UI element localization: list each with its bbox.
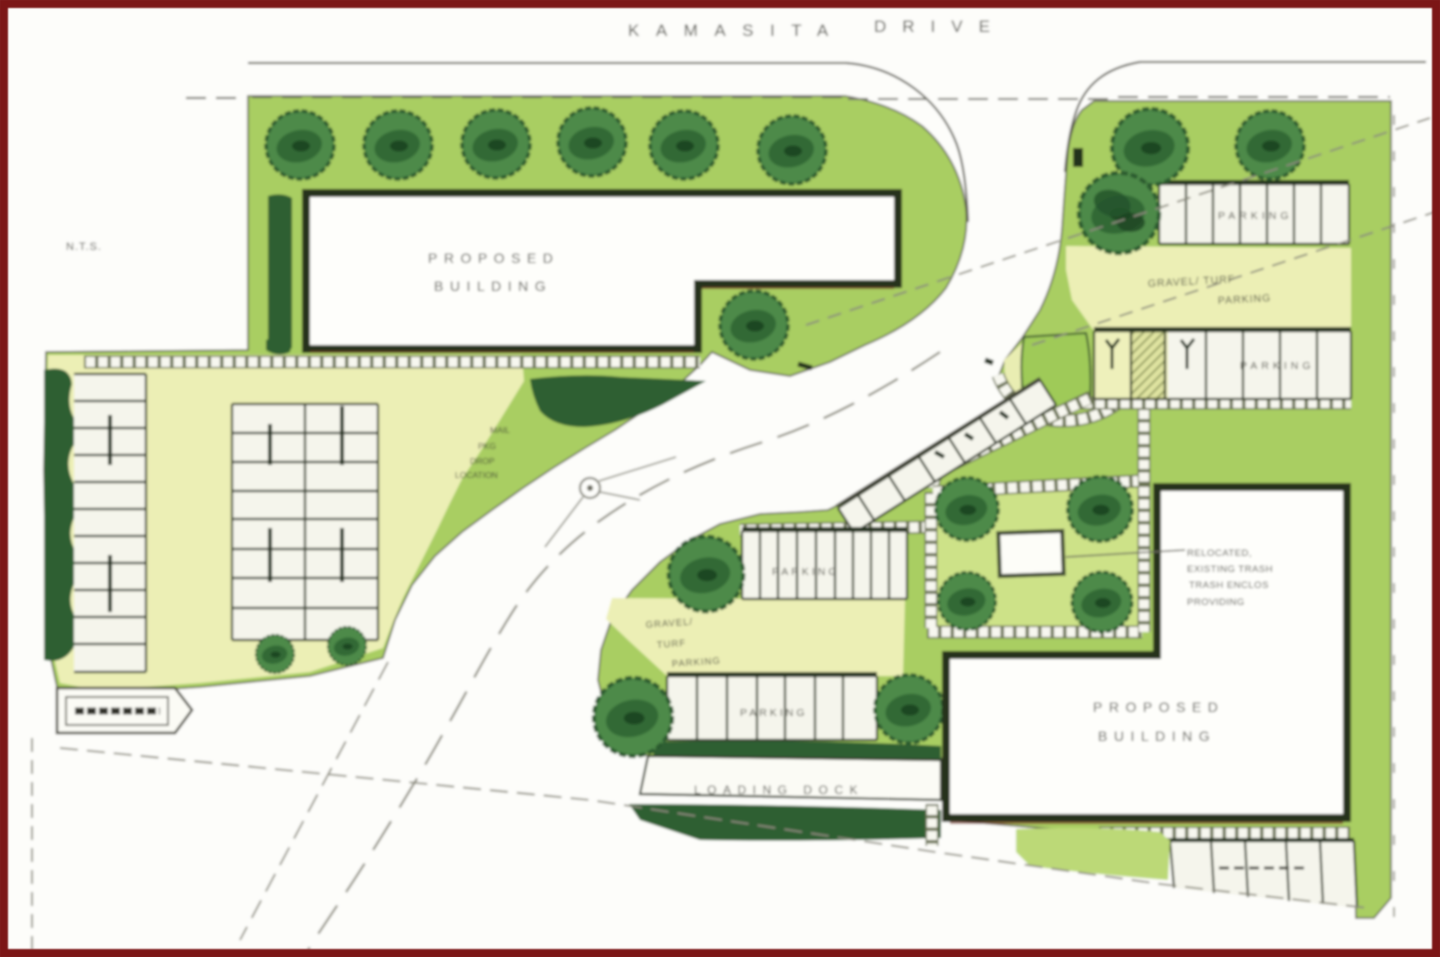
svg-text:PARKING: PARKING	[1240, 360, 1314, 372]
svg-text:KAMASITA: KAMASITA	[628, 21, 845, 40]
svg-text:PARKING: PARKING	[772, 566, 839, 578]
svg-text:DROP: DROP	[470, 456, 495, 466]
svg-text:MAIL: MAIL	[490, 425, 510, 435]
svg-text:PROPOSED: PROPOSED	[1093, 699, 1224, 715]
svg-text:LOCATION: LOCATION	[455, 470, 498, 480]
svg-text:PKG: PKG	[478, 441, 496, 451]
svg-text:DRIVE: DRIVE	[874, 17, 1006, 36]
svg-text:PROVIDING: PROVIDING	[1187, 597, 1245, 608]
svg-text:RELOCATED,: RELOCATED,	[1187, 548, 1252, 559]
svg-text:PROPOSED: PROPOSED	[428, 250, 559, 266]
svg-text:TURF: TURF	[656, 638, 686, 651]
svg-text:BUILDING: BUILDING	[1098, 728, 1216, 744]
svg-text:EXISTING TRASH: EXISTING TRASH	[1187, 564, 1273, 575]
svg-text:PARKING: PARKING	[1218, 210, 1292, 222]
svg-text:LOADING DOCK: LOADING DOCK	[694, 783, 864, 797]
svg-text:TRASH ENCLOS: TRASH ENCLOS	[1189, 580, 1269, 591]
svg-text:PARKING: PARKING	[740, 707, 807, 719]
svg-text:BUILDING: BUILDING	[434, 278, 552, 294]
svg-text:N.T.S.: N.T.S.	[66, 241, 102, 253]
